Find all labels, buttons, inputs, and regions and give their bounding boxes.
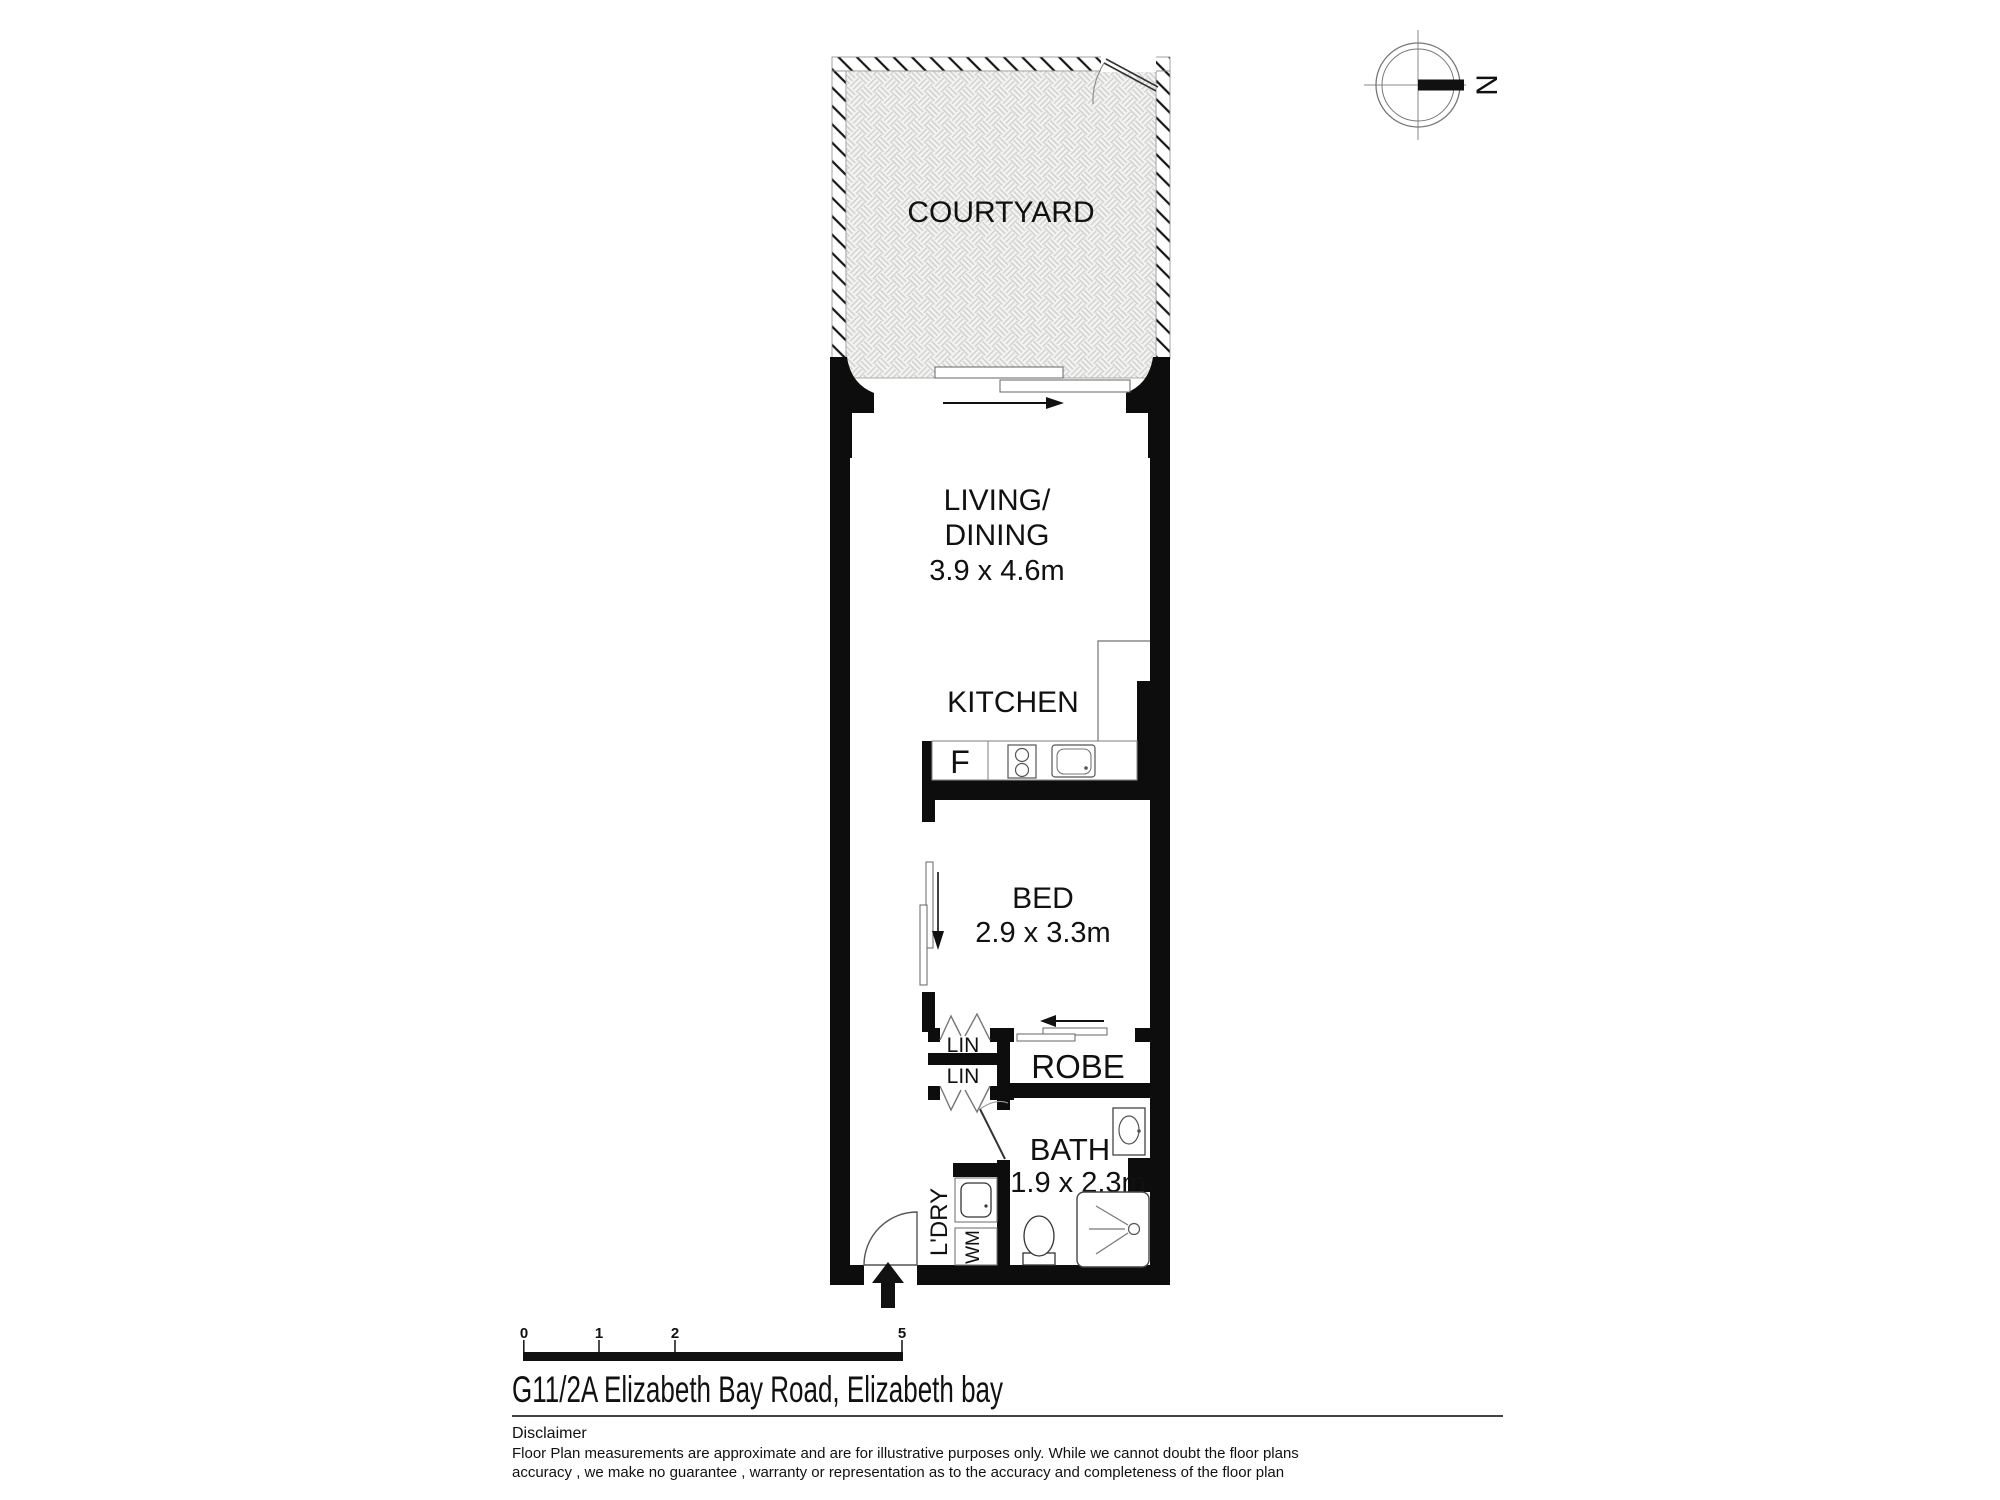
laundry-north-wall: [953, 1163, 997, 1177]
kitchen-sink-icon: [1052, 745, 1095, 777]
toilet-icon: [1023, 1216, 1055, 1265]
compass-north-pointer: [1418, 80, 1464, 91]
courtyard-hatch-border-left: [832, 71, 846, 359]
compass-north-label: N: [1470, 74, 1503, 96]
sliding-door-panel-inner: [1000, 380, 1130, 392]
bed-label: BED: [1012, 882, 1074, 915]
bottom-wall-left-stub: [830, 1265, 864, 1285]
linen-bottom-label: LIN: [947, 1065, 980, 1088]
linen-bottom-jamb-left: [928, 1086, 940, 1100]
floor-plan-page: COURTYARD LIVING/ DININ: [0, 0, 2000, 1500]
kitchen-bed-divider-wall: [922, 780, 1170, 800]
fridge-label: F: [950, 744, 970, 780]
basin-icon: [1113, 1108, 1145, 1155]
laundry-tub-icon: [955, 1178, 997, 1222]
bath-label: BATH: [1030, 1132, 1110, 1167]
scale-tick-5: 5: [898, 1325, 906, 1342]
sliding-door-panel-outer: [935, 367, 1063, 378]
shower-icon: [1077, 1192, 1149, 1267]
floor-plan-canvas: COURTYARD LIVING/ DININ: [0, 0, 2000, 1500]
courtyard-area: COURTYARD: [832, 54, 1170, 378]
courtyard-hatch-border-right: [1156, 71, 1170, 359]
bed-sliding-panel-2: [920, 905, 927, 985]
living-label-line1: LIVING/: [944, 484, 1051, 517]
washing-machine-label: WM: [963, 1230, 984, 1264]
bath-north-wall: [997, 1083, 1170, 1098]
robe-label: ROBE: [1031, 1048, 1125, 1085]
west-wall: [830, 455, 850, 1285]
courtyard-label: COURTYARD: [907, 196, 1094, 229]
disclaimer-line1: Floor Plan measurements are approximate …: [512, 1445, 1299, 1462]
scale-tick-1: 1: [595, 1325, 603, 1342]
bottom-wall-main: [917, 1265, 1170, 1285]
disclaimer-line2: accuracy , we make no guarantee , warran…: [512, 1464, 1284, 1481]
linen-top-label: LIN: [947, 1034, 980, 1057]
scale-tick-2: 2: [671, 1325, 679, 1342]
scale-bar-rule: [523, 1352, 903, 1361]
kitchen-label: KITCHEN: [947, 686, 1079, 719]
east-wall: [1150, 455, 1170, 1285]
robe-north-stub: [1135, 1028, 1170, 1042]
linen-top-jamb-left: [928, 1028, 940, 1042]
bed-dimensions: 2.9 x 3.3m: [975, 917, 1110, 949]
bath-west-wall-upper: [997, 1098, 1010, 1110]
bed-west-wall-lower: [922, 992, 935, 1032]
bed-west-wall-upper: [922, 800, 935, 822]
scale-tick-0: 0: [520, 1325, 528, 1342]
page-title: G11/2A Elizabeth Bay Road, Elizabeth bay: [512, 1369, 1003, 1410]
washing-machine-icon: WM: [955, 1228, 997, 1265]
cooktop-icon: [1008, 745, 1036, 778]
disclaimer-heading: Disclaimer: [512, 1425, 587, 1442]
gate-opening: [1101, 54, 1156, 72]
living-dimensions: 3.9 x 4.6m: [929, 555, 1064, 587]
kitchen-bench-end-wall: [922, 741, 932, 781]
bath-west-wall-lower: [997, 1160, 1010, 1265]
living-label-line2: DINING: [945, 519, 1050, 552]
laundry-label: L'DRY: [926, 1188, 953, 1256]
robe-sliding-panel-2: [1017, 1034, 1075, 1041]
laundry: L'DRY WM: [926, 1178, 997, 1265]
